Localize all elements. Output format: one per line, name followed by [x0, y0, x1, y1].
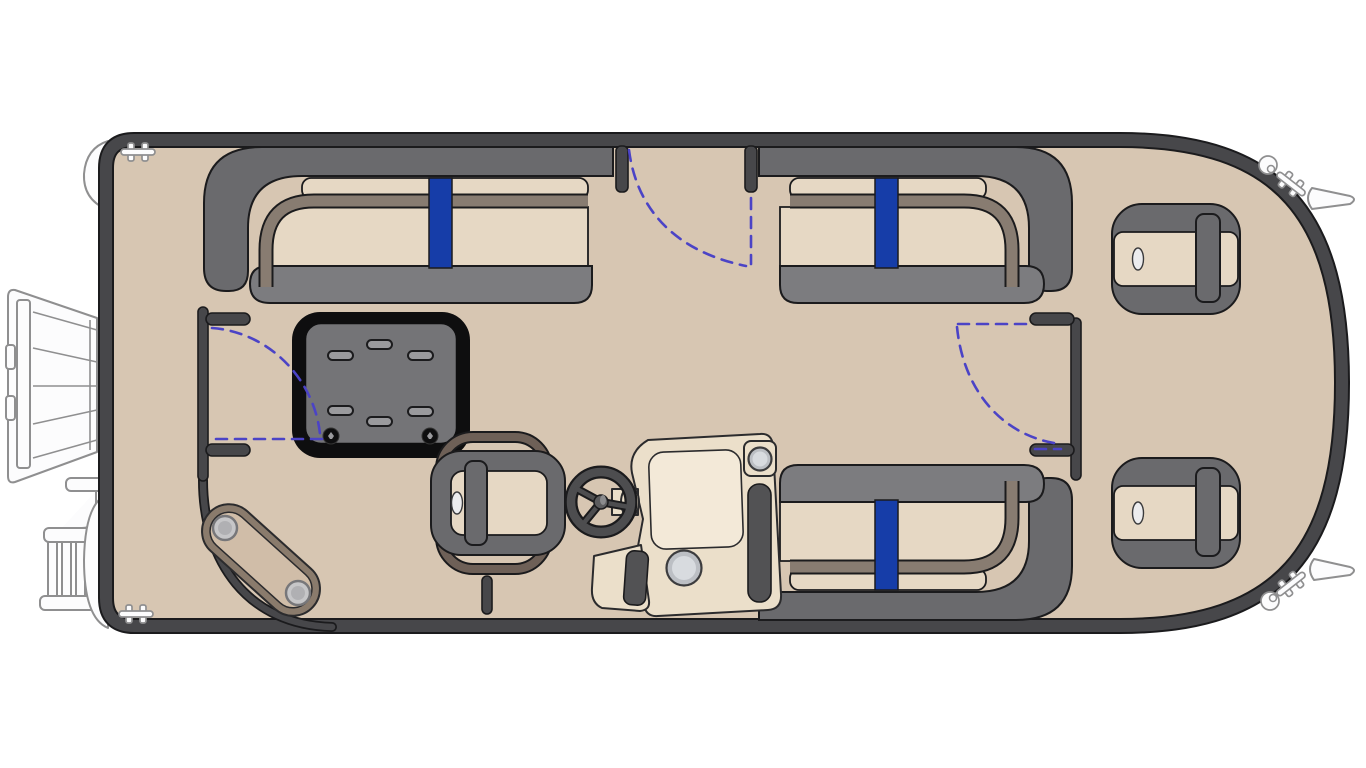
- cup-slot: [328, 351, 353, 360]
- accent-stripe: [875, 178, 898, 268]
- tow-post: [482, 576, 492, 614]
- pontoon-floorplan-page: [0, 0, 1366, 768]
- bow-chair-upper: [1112, 204, 1240, 314]
- accent-stripe: [429, 178, 452, 268]
- bow-fin-top-right: [1308, 188, 1354, 209]
- seat-base: [250, 266, 592, 303]
- lounge-top-left: [204, 147, 613, 303]
- nav-light-top-right-icon: [1259, 156, 1277, 174]
- cup-slot: [408, 351, 433, 360]
- nav-light-bottom-right-icon: [1261, 592, 1279, 610]
- pedestal-fitting-icon: [323, 428, 339, 444]
- cup-slot: [367, 417, 392, 426]
- seat-logo-icon: [1133, 502, 1144, 524]
- cup-slot: [408, 407, 433, 416]
- seat-base: [780, 266, 1044, 303]
- accent-stripe: [875, 500, 898, 590]
- pedestal-fitting-icon: [422, 428, 438, 444]
- seat-logo-icon: [1133, 248, 1144, 270]
- table: [292, 312, 470, 458]
- seat-logo-icon: [452, 492, 463, 514]
- bow-chair-lower: [1112, 458, 1240, 568]
- console-side-pad: [748, 484, 771, 602]
- footwell-pad: [623, 550, 649, 605]
- captain-chair: [431, 437, 565, 569]
- bow-fin-bottom-right: [1310, 559, 1354, 580]
- seat-base: [780, 465, 1044, 502]
- dash-panel: [648, 449, 743, 549]
- outboard-motor-icon: [6, 290, 97, 483]
- cup-slot: [328, 406, 353, 415]
- pontoon-floorplan-diagram: [0, 0, 1366, 768]
- cup-slot: [367, 340, 392, 349]
